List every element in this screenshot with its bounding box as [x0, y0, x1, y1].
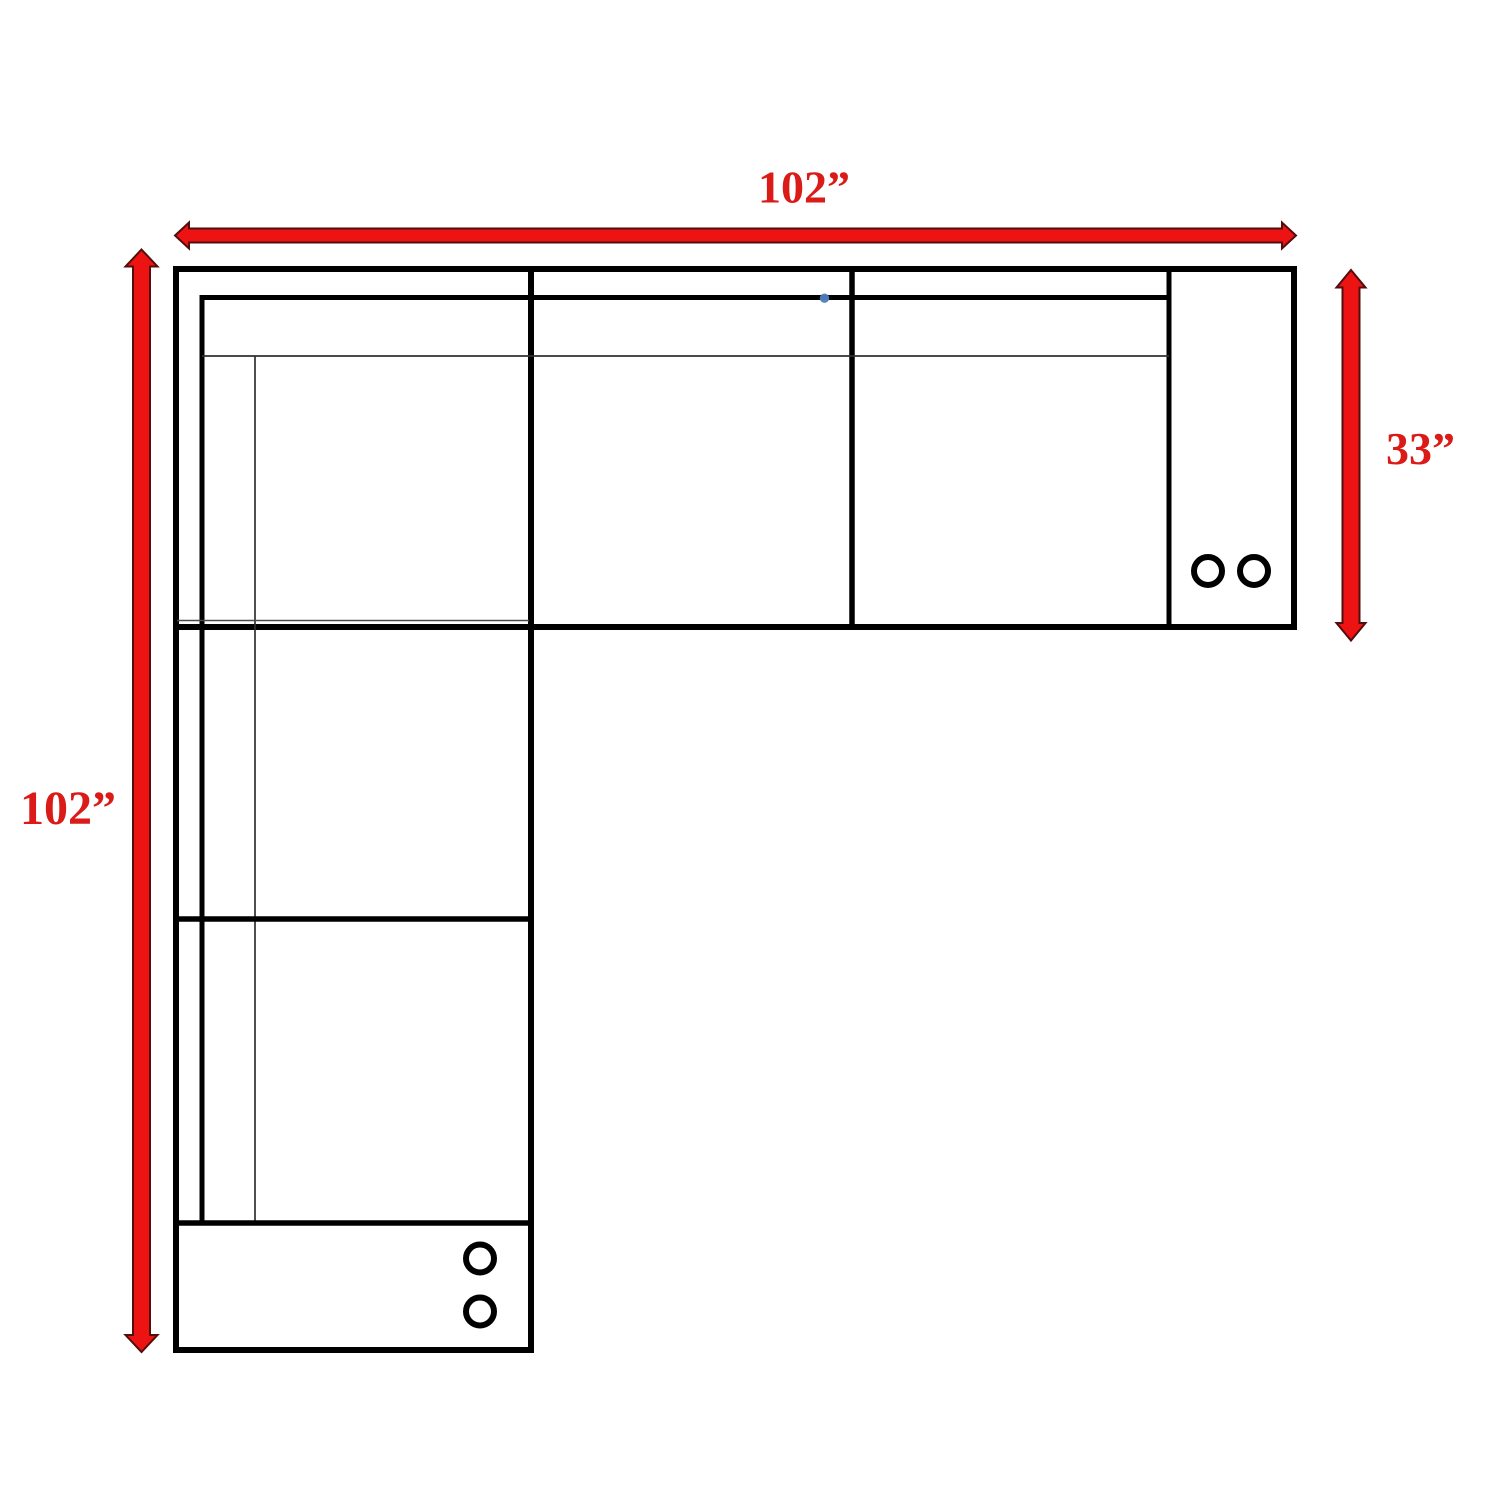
- svg-text:102”: 102”: [758, 162, 850, 213]
- svg-text:102”: 102”: [20, 782, 116, 835]
- svg-text:33”: 33”: [1386, 423, 1455, 474]
